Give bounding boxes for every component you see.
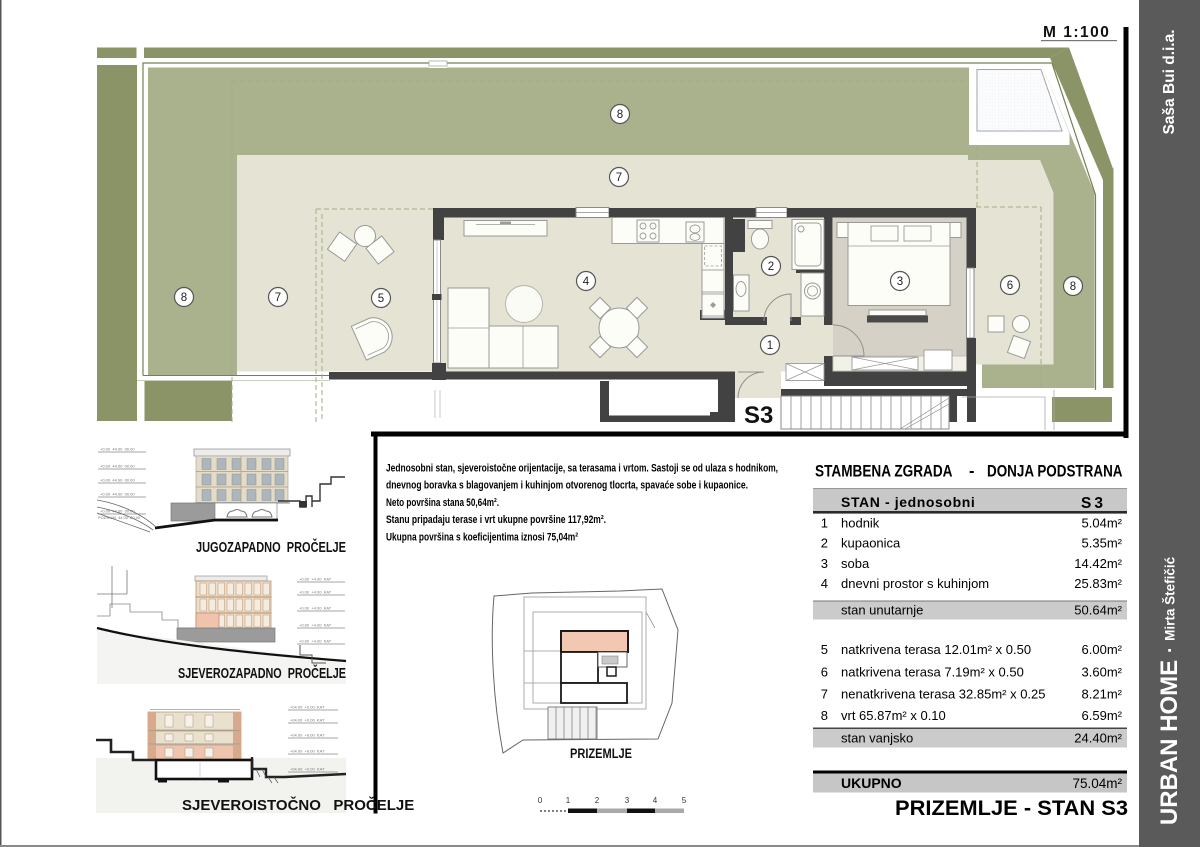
svg-text:+04.00 +0.00 KAT: +04.00 +0.00 KAT [290,749,325,754]
svg-text:S3: S3 [744,402,773,429]
svg-text:7: 7 [275,292,281,304]
svg-text:+0.00 44.90 00.00: +0.00 44.90 00.00 [100,492,135,497]
svg-text:1: 1 [566,796,571,805]
svg-text:2: 2 [821,536,828,551]
svg-text:+0.00 +4.00 KAT: +0.00 +4.00 KAT [299,606,332,611]
svg-text:1: 1 [821,516,828,531]
svg-text:2: 2 [768,261,774,273]
svg-text:DONJA PODSTRANA: DONJA PODSTRANA [987,463,1123,481]
svg-text:3: 3 [897,276,903,288]
svg-text:vrt 65.87m² x 0.10: vrt 65.87m² x 0.10 [841,708,946,723]
svg-text:5.35m²: 5.35m² [1082,536,1123,551]
svg-text:M 1:100: M 1:100 [1043,24,1110,41]
svg-text:S3: S3 [1081,495,1106,512]
svg-text:75.04m²: 75.04m² [1072,776,1122,791]
svg-text:kupaonica: kupaonica [841,536,901,551]
svg-text:Jednosobni stan, sjeveroistočn: Jednosobni stan, sjeveroistočne orijenta… [386,462,778,474]
svg-text:4: 4 [821,576,828,591]
svg-text:3.60m²: 3.60m² [1082,664,1123,679]
svg-text:5: 5 [378,293,384,305]
svg-text:+04.00 +0.00 KAT: +04.00 +0.00 KAT [290,718,325,723]
svg-text:0: 0 [538,796,543,805]
svg-text:UKUPNO: UKUPNO [841,775,902,791]
svg-text:PRIZEMLJE - STAN S3: PRIZEMLJE - STAN S3 [895,797,1128,820]
svg-text:6.00m²: 6.00m² [1082,642,1123,657]
svg-text:50.64m²: 50.64m² [1074,603,1122,618]
svg-text:JUGOZAPADNO PROČELJE: JUGOZAPADNO PROČELJE [196,538,346,556]
svg-text:8: 8 [181,292,187,304]
svg-text:stan vanjsko: stan vanjsko [841,731,913,746]
svg-text:6: 6 [821,664,828,679]
svg-text:6: 6 [1007,280,1013,292]
svg-text:nenatkrivena terasa 32.85m² x: nenatkrivena terasa 32.85m² x 0.25 [841,687,1046,702]
svg-text:+0.00 +4.00 KAT: +0.00 +4.00 KAT [299,577,332,582]
svg-text:8: 8 [1070,281,1076,293]
svg-text:+0.00 44.90 00.00: +0.00 44.90 00.00 [100,478,135,483]
svg-text:dnevni prostor s kuhinjom: dnevni prostor s kuhinjom [841,576,989,591]
svg-text:5: 5 [682,796,687,805]
svg-text:5: 5 [821,642,828,657]
svg-text:14.42m²: 14.42m² [1074,556,1122,571]
svg-text:1: 1 [767,340,773,352]
svg-text:+0.00 44.90 00.00: +0.00 44.90 00.00 [100,447,135,452]
svg-text:natkrivena terasa 7.19m² x 0.5: natkrivena terasa 7.19m² x 0.50 [841,664,1024,679]
svg-text:STAMBENA ZGRADA: STAMBENA ZGRADA [815,463,953,481]
svg-text:7: 7 [616,172,622,184]
svg-text:+04.00 +0.00 KAT: +04.00 +0.00 KAT [290,767,325,772]
svg-text:8: 8 [617,109,623,121]
svg-text:5.04m²: 5.04m² [1082,516,1123,531]
svg-text:7: 7 [821,687,828,702]
svg-text:3: 3 [821,556,828,571]
svg-text:STAN - jednosobni: STAN - jednosobni [841,494,975,510]
svg-text:natkrivena terasa 12.01m² x 0.: natkrivena terasa 12.01m² x 0.50 [841,642,1031,657]
svg-text:8: 8 [821,708,828,723]
svg-text:8.21m²: 8.21m² [1082,687,1123,702]
svg-text:+04.00 +0.00 KAT: +04.00 +0.00 KAT [290,733,325,738]
svg-text:6.59m²: 6.59m² [1082,708,1123,723]
svg-text:+0.00 44.90 00.00: +0.00 44.90 00.00 [100,464,135,469]
svg-text:PRIZEMLJE: PRIZEMLJE [570,746,632,761]
svg-text:SJEVEROZAPADNO PROČELJE: SJEVEROZAPADNO PROČELJE [178,664,346,682]
svg-text:+04.00 +0.00 KAT: +04.00 +0.00 KAT [290,705,325,710]
svg-text:dnevnog boravka s blagovanjem: dnevnog boravka s blagovanjem i kuhinjom… [386,480,748,492]
svg-text:24.40m²: 24.40m² [1074,731,1122,746]
svg-text:4: 4 [583,276,590,288]
svg-text:+0.00 +4.00 KAT: +0.00 +4.00 KAT [299,639,332,644]
svg-text:SJEVEROISTOČNO PROČELJE: SJEVEROISTOČNO PROČELJE [182,796,414,814]
svg-text:+0.00 +4.00 KAT: +0.00 +4.00 KAT [299,623,332,628]
svg-text:2: 2 [595,796,600,805]
svg-text:stan unutarnje: stan unutarnje [841,603,923,618]
svg-text:hodnik: hodnik [841,516,880,531]
svg-text:-: - [969,463,975,481]
svg-text:25.83m²: 25.83m² [1074,576,1122,591]
svg-text:Ukupna površina s koeficijenti: Ukupna površina s koeficijentima iznosi … [386,532,578,544]
svg-text:+0.00 +4.00 KAT: +0.00 +4.00 KAT [299,590,332,595]
svg-text:soba: soba [841,556,870,571]
svg-text:Neto površina stana 50,64m².: Neto površina stana 50,64m². [386,497,499,509]
svg-text:4: 4 [653,796,658,805]
svg-text:3: 3 [625,796,630,805]
svg-text:Stanu pripadaju terase i vrt u: Stanu pripadaju terase i vrt ukupne povr… [386,514,606,526]
svg-text:PODRUM 44.00 00.00: PODRUM 44.00 00.00 [98,515,141,520]
